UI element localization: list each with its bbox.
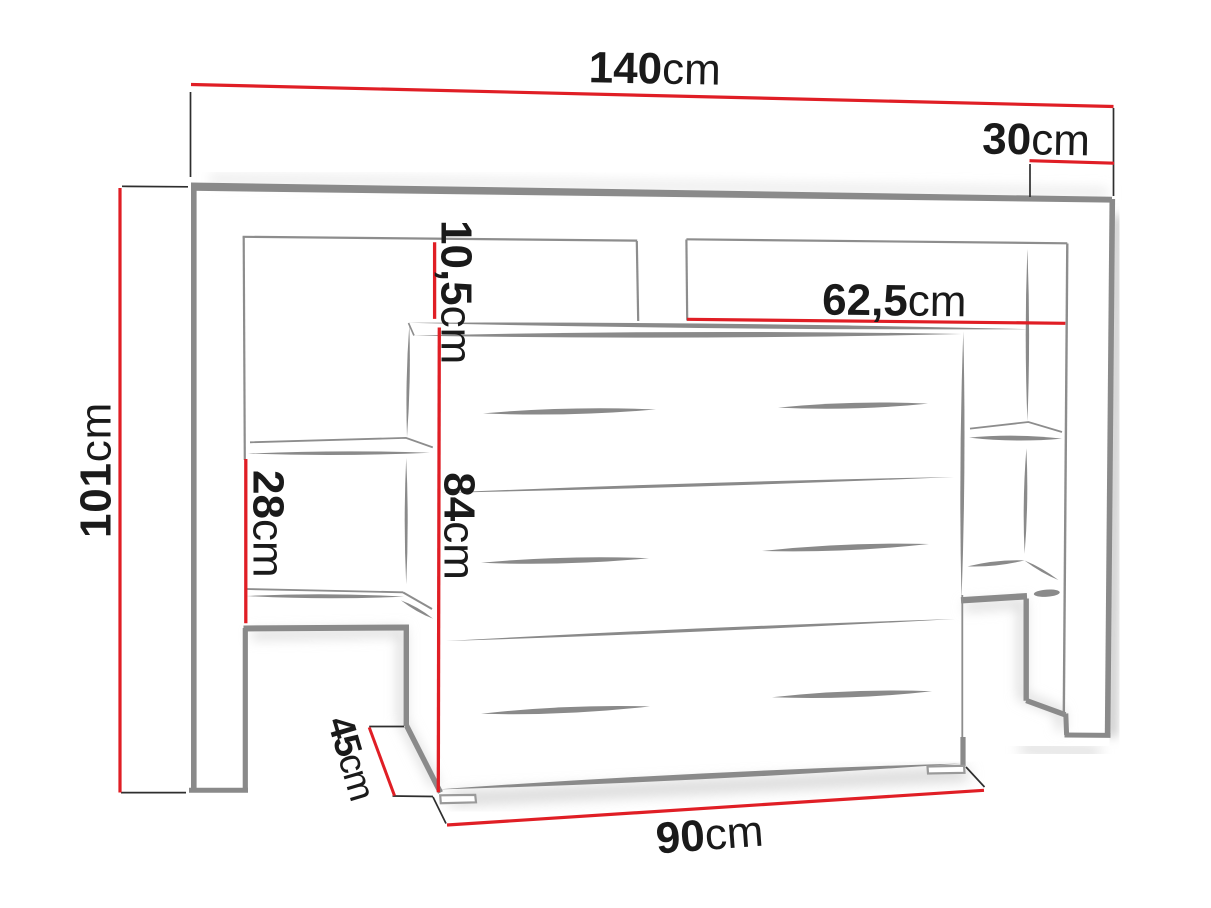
svg-text:10,5cm: 10,5cm — [432, 220, 481, 364]
svg-text:140cm: 140cm — [588, 43, 721, 94]
svg-text:84cm: 84cm — [435, 472, 484, 580]
svg-text:90cm: 90cm — [654, 807, 765, 864]
svg-text:30cm: 30cm — [982, 115, 1090, 166]
svg-text:62,5cm: 62,5cm — [822, 276, 967, 327]
svg-text:28cm: 28cm — [244, 470, 293, 578]
svg-text:101cm: 101cm — [72, 402, 121, 538]
